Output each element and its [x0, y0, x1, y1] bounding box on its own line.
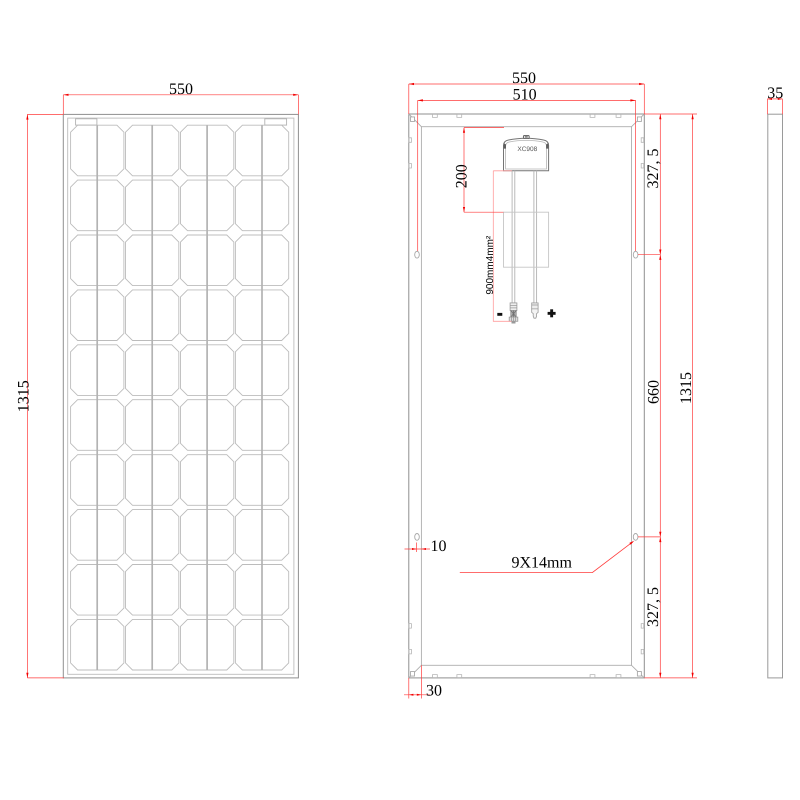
svg-text:9X14mm: 9X14mm	[512, 555, 573, 572]
svg-text:XC908: XC908	[517, 146, 537, 153]
svg-text:10: 10	[431, 538, 447, 555]
svg-text:327, 5: 327, 5	[645, 587, 662, 627]
svg-text:1315: 1315	[16, 380, 33, 412]
svg-text:550: 550	[169, 81, 193, 98]
svg-text:900mm4mm²: 900mm4mm²	[485, 235, 496, 295]
svg-text:1315: 1315	[678, 372, 695, 404]
svg-text:550: 550	[512, 70, 536, 87]
svg-text:510: 510	[513, 86, 537, 103]
svg-text:30: 30	[426, 682, 442, 699]
svg-text:660: 660	[645, 380, 662, 404]
svg-text:35: 35	[767, 85, 783, 102]
svg-text:200: 200	[453, 164, 470, 188]
svg-text:327, 5: 327, 5	[645, 149, 662, 189]
